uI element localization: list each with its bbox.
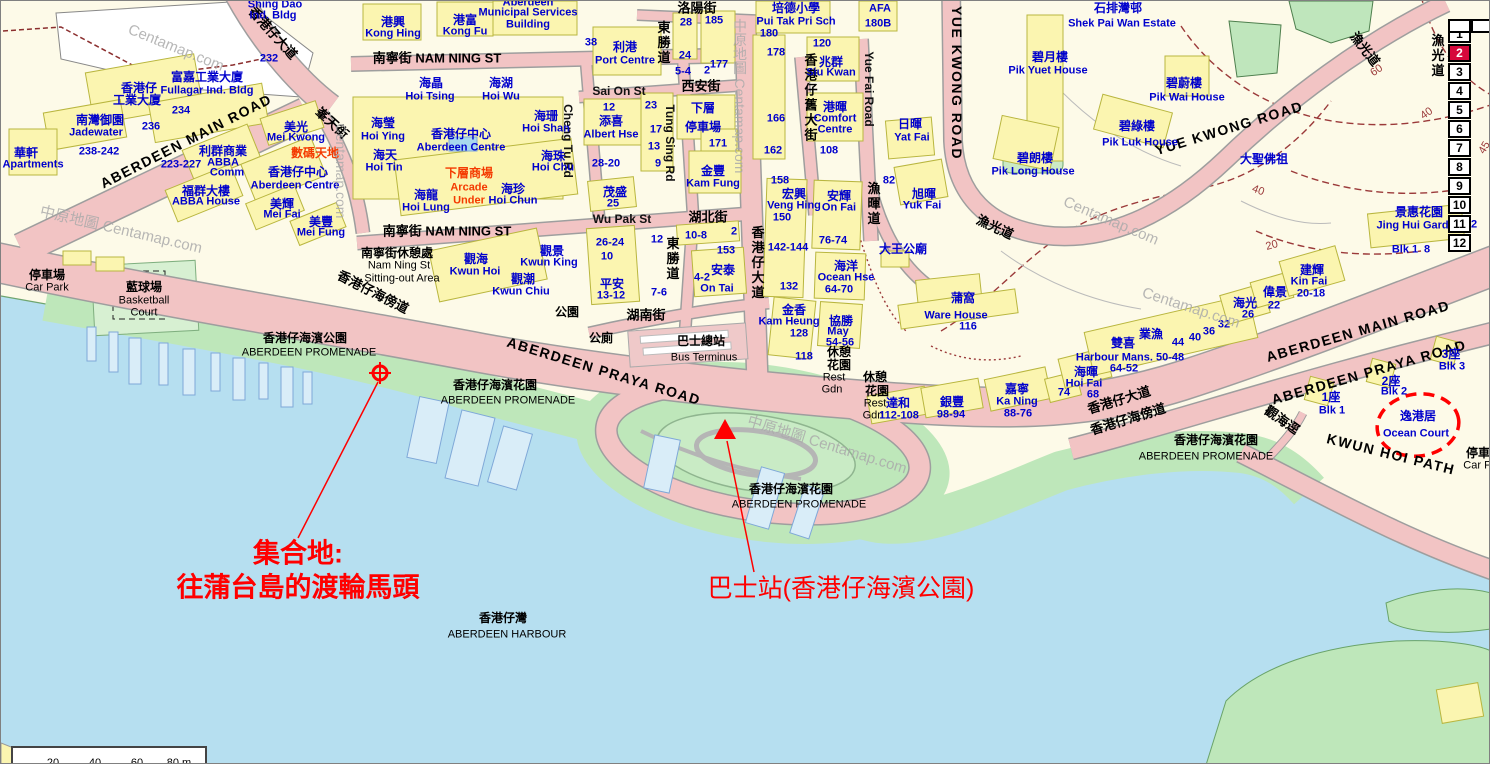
map-label: 港興 (381, 16, 405, 28)
map-label: Fullagar Ind. Bldg (161, 86, 254, 97)
map-label: 海龍 (414, 189, 438, 201)
map-label: Jadewater (69, 128, 123, 139)
map-label: 銀豐 (940, 396, 964, 408)
map-label: 香港仔中心 (268, 166, 328, 178)
map-label: Arcade (450, 183, 487, 194)
map-label: 宏興 (782, 188, 806, 200)
map-label: 166 (767, 114, 785, 125)
map-label: Apartments (2, 160, 63, 171)
map-label: 利群商業 (199, 145, 247, 157)
map-label: Kwun Hoi (450, 267, 501, 278)
map-label: Car Park (1463, 461, 1490, 472)
map-label: 3座 (1442, 348, 1461, 360)
map-label: 逸港居 (1400, 410, 1436, 422)
map-label: 142-144 (768, 243, 808, 254)
scale-tick: 40 (89, 757, 101, 764)
map-label: 南灣御園 (76, 114, 124, 126)
map-label: 44 (1172, 338, 1184, 349)
map-label: 業漁 (1139, 328, 1163, 340)
map-label: 港暉 (823, 101, 847, 113)
map-label: 休憩 (827, 346, 851, 358)
map-label: 富嘉工業大廈 (171, 71, 243, 83)
map-label: 海珍 (501, 183, 525, 195)
map-label: 40 (1250, 184, 1265, 199)
map-label: 海晶 (419, 77, 443, 89)
map-label: Ind. Bldg (249, 11, 296, 22)
map-label: Mei Kwong (267, 133, 325, 144)
map-label: 旭暉 (912, 188, 936, 200)
map-label: Aberdeen Centre (251, 181, 340, 192)
map-label: 湖南街 (626, 309, 665, 322)
map-label: 26 (1242, 310, 1254, 321)
map-label: 公廁 (589, 332, 613, 344)
map-label: 下層商場 (445, 167, 493, 179)
scale-tick: 80 m (167, 757, 191, 764)
map-label: 茂盛 (603, 186, 627, 198)
map-label: 香港仔海濱花園 (453, 379, 537, 391)
map-label: Mei Fai (263, 210, 300, 221)
page-index-button-8[interactable]: 8 (1448, 158, 1471, 176)
map-label: Pik Long House (991, 167, 1074, 178)
map-label: 234 (172, 106, 190, 117)
map-label: Ocean Court (1383, 429, 1449, 440)
map-label: Ka Ning (996, 397, 1038, 408)
page-index-button-12[interactable]: 12 (1448, 234, 1471, 252)
map-label: 40 (1189, 333, 1201, 344)
map-label: 1座 (1322, 391, 1341, 403)
map-label: 石排灣邨 (1094, 2, 1142, 14)
map-label: Sitting-out Area (364, 274, 439, 285)
map-label: Ware House (924, 311, 987, 322)
page-index-button-5[interactable]: 5 (1448, 101, 1471, 119)
map-label: Kam Heung (758, 317, 819, 328)
map-label: 公園 (555, 306, 579, 318)
map-label: Blk 1 (1392, 245, 1418, 256)
map-label: 45 (1477, 140, 1490, 156)
scale-tick: 60 (131, 757, 143, 764)
map-label: 利港 (613, 41, 637, 53)
map-label: Under (453, 196, 485, 207)
map-label: 添喜 (599, 115, 623, 127)
map-label: Albert Hse (583, 130, 638, 141)
scale-tick: 20 (47, 757, 59, 764)
map-label: 24 (679, 51, 691, 62)
map-label: 香港仔灣 (479, 612, 527, 624)
map-label: 南寧街 NAM NING ST (383, 225, 512, 238)
map-label: 22 (1268, 301, 1280, 312)
map-label: 碧月樓 (1032, 51, 1068, 63)
map-label: 偉景 (1263, 286, 1287, 298)
map-label: 223-227 (161, 160, 201, 171)
map-label: Hoi Chu (532, 163, 574, 174)
page-index-button-7[interactable]: 7 (1448, 139, 1471, 157)
map-label: 238-242 (79, 147, 119, 158)
map-label: 162 (764, 146, 782, 157)
map-label: 中原地圖 Centamap.com (745, 414, 908, 477)
map-label: 171 (709, 139, 727, 150)
map-label: YUE KWONG ROAD (950, 6, 964, 160)
map-label: Sai On St (592, 85, 645, 97)
page-index-button-10[interactable]: 10 (1448, 196, 1471, 214)
map-label: Ocean Hse (818, 273, 875, 284)
map-label: 海暉 (1074, 366, 1098, 378)
map-label: 下層 (691, 102, 715, 114)
meeting-point-label: 集合地: 往蒲台島的渡輪馬頭 (177, 537, 420, 605)
map-label: Blk 3 (1439, 362, 1465, 373)
map-label: 漁暉道 (867, 182, 880, 227)
map-label: 2 (731, 227, 737, 238)
map-label: 漁光道 (1431, 34, 1444, 79)
page-index-partial-box (1471, 19, 1490, 33)
map-label: 停車場 (685, 121, 721, 133)
map-label: 香港仔中心 (431, 128, 491, 140)
map-label: Kam Fung (686, 179, 740, 190)
map-label: 海湖 (489, 77, 513, 89)
map-label: 金豐 (701, 165, 725, 177)
page-index: 123456789101112 (1448, 25, 1471, 253)
page-index-partial-box (1448, 19, 1471, 33)
map-label: 10-8 (685, 231, 707, 242)
map-label: 日暉 (898, 118, 922, 130)
map-label: ABBA House (172, 197, 240, 208)
map-label: 116 (959, 322, 977, 333)
map-label: Nam Ning St (368, 261, 430, 272)
meeting-point-label-line1: 集合地: (177, 537, 420, 571)
map-label: Hoi Shan (522, 124, 570, 135)
map-label: Rest (864, 399, 887, 410)
map-label: Pik Wai House (1149, 93, 1224, 104)
map-label: 觀海 (464, 253, 488, 265)
map-label: 香港仔海濱花園 (749, 483, 833, 495)
map-label: Wu Pak St (593, 213, 651, 225)
map-label: 232 (260, 54, 278, 65)
map-label: 38 (585, 38, 597, 49)
map-label: 巴士總站 (677, 335, 725, 347)
map-label: Comm (210, 168, 244, 179)
map-label: 88-76 (1004, 409, 1032, 420)
map-label: 培德小學 (772, 2, 820, 14)
map-label: 36 (1203, 327, 1215, 338)
map-label: Rest (823, 373, 846, 384)
map-label: 178 (767, 48, 785, 59)
map-label: 景惠花園 (1395, 206, 1443, 218)
map-label: 82 (883, 176, 895, 187)
map-label: Hoi Chun (489, 196, 538, 207)
map-label: 10 (601, 252, 613, 263)
map-label: 花園 (827, 359, 851, 371)
map-label: 153 (717, 246, 735, 257)
map-label: 112-108 (879, 411, 919, 422)
scale-bar: 20406080 m (11, 746, 207, 764)
map-label: 中原地圖 Centamap.com (733, 19, 747, 174)
map-label: 蒲窩 (951, 292, 975, 304)
map-label: 港富 (453, 14, 477, 26)
map-label: 68 (1087, 390, 1099, 401)
map-label: 128 (790, 329, 808, 340)
map-label: 安輝 (827, 190, 851, 202)
map-label: Tung Sing Rd (664, 104, 676, 181)
map-label: Hoi Ying (361, 132, 405, 143)
map-label: Court (131, 308, 158, 319)
map-label: 湖北街 (688, 211, 727, 224)
map-label: 13 (648, 142, 660, 153)
map-label: 20-18 (1297, 289, 1325, 300)
map-label: Centamap.com (1140, 285, 1241, 331)
map-label: Blk 2 (1381, 387, 1407, 398)
map-label: 28 (680, 18, 692, 29)
map-label: Building (506, 20, 550, 31)
map-label: Kong Fu (443, 27, 488, 38)
map-label: AFA (869, 4, 891, 15)
map-label: 觀潮 (511, 273, 535, 285)
map-label: Gdn (822, 385, 843, 396)
map-label: Kwun Chiu (492, 287, 549, 298)
map-label: On Tai (700, 284, 733, 295)
map-label: 海洋 (834, 260, 858, 272)
map-label: 118 (795, 352, 813, 363)
map-label: ABERDEEN HARBOUR (448, 630, 567, 641)
map-label: 64-70 (825, 285, 853, 296)
map-label: 華軒 (14, 147, 38, 159)
map-label: 漁光道 (975, 213, 1016, 241)
map-label: ABERDEEN PROMENADE (1139, 452, 1273, 463)
map-label: 安泰 (711, 264, 735, 276)
map-label: Pik Yuet House (1008, 66, 1087, 77)
map-label: Yat Fai (894, 133, 929, 144)
map-label: 大聖佛祖 (1240, 153, 1288, 165)
map-label: 中原地圖 Centamap.com (38, 204, 203, 256)
map-label: 觀海逕 (1262, 403, 1301, 436)
map-label: 25 (607, 199, 619, 210)
map-label: 觀景 (540, 245, 564, 257)
map-label: 98-94 (937, 410, 965, 421)
map-label: 香港仔海濱花園 (1174, 434, 1258, 446)
meeting-point-label-line2: 往蒲台島的渡輪馬頭 (177, 571, 420, 605)
map-label: 海珊 (534, 110, 558, 122)
map-label: 5-4 (675, 67, 691, 78)
map-label: 12 (651, 235, 663, 246)
map-label: 26-24 (596, 238, 624, 249)
map-label: 工業大廈 (113, 94, 161, 106)
map-label: 17 (650, 125, 662, 136)
map-label: 數碼天地 (291, 147, 339, 159)
map-label: 東勝道 (657, 21, 670, 66)
map-label: 23 (645, 101, 657, 112)
map-label: 大王公廟 (879, 243, 927, 255)
map-label: 13-12 (597, 291, 625, 302)
page-index-button-2[interactable]: 2 (1448, 44, 1471, 62)
map-label: Siu Kwan (806, 68, 856, 79)
map-label: Hoi Wu (482, 92, 520, 103)
map-label: Blk 1 (1319, 406, 1345, 417)
map-label: 碧綠樓 (1119, 120, 1155, 132)
map-label: Car Park (25, 283, 68, 294)
map-label: Port Centre (595, 56, 655, 67)
map-label: Bus Terminus (671, 353, 737, 364)
bus-stop-label: 巴士站(香港仔海濱公園) (708, 573, 975, 604)
map-label: Centamap.com (126, 22, 226, 74)
map-label: 76-74 (819, 236, 847, 247)
map-label: 南寧街休憩處 (361, 247, 433, 259)
map-label: 海珠 (541, 150, 565, 162)
map-label: 158 (771, 176, 789, 187)
map-label: 藍球場 (126, 281, 162, 293)
map-label: Shek Pai Wan Estate (1068, 19, 1176, 30)
map-labels-layer: ABERDEEN MAIN ROAD南寧街 NAM NING ST南寧街 NAM… (1, 1, 1489, 763)
map-label: 建輝 (1300, 264, 1324, 276)
map-label: Basketball (119, 296, 170, 307)
map-label: 海瑩 (371, 117, 395, 129)
map-label: Hoi Tsing (405, 92, 454, 103)
map-label: Municipal Services (478, 8, 577, 19)
page-index-button-11[interactable]: 11 (1448, 215, 1471, 233)
map-label: 達和 (886, 397, 910, 409)
map-label: Yuk Fai (903, 201, 942, 212)
page-index-button-6[interactable]: 6 (1448, 120, 1471, 138)
map-label: 185 (705, 16, 723, 27)
map-label: Pik Luk House (1102, 138, 1178, 149)
map-label: 停車場 (1466, 447, 1490, 459)
map-label: 嘉寧 (1005, 383, 1029, 395)
map-label: ABERDEEN PROMENADE (242, 348, 376, 359)
map-label: 150 (773, 213, 791, 224)
map-label: 西安街 (681, 80, 720, 93)
map-label: 8 (1424, 245, 1430, 256)
map-label: 東勝道 (666, 237, 679, 282)
page-index-button-3[interactable]: 3 (1448, 63, 1471, 81)
map-label: 平安 (600, 278, 624, 290)
map-label: Hoi Lung (402, 203, 450, 214)
map-label: 碧朗樓 (1017, 152, 1053, 164)
map-label: 64-52 (1110, 364, 1138, 375)
map-label: Mei Fung (297, 228, 345, 239)
map-label: 雙喜 (1111, 337, 1135, 349)
map-label: 108 (820, 146, 838, 157)
map-label: Yue Fai Road (863, 51, 875, 126)
map-label: 香港仔海濱公園 (263, 332, 347, 344)
map-label: Veng Hing (767, 201, 821, 212)
map-label: Pui Tak Pri Sch (756, 17, 835, 28)
map-label: On Fai (822, 203, 856, 214)
map-label: 7-6 (651, 288, 667, 299)
map-label: 洛陽街 (677, 2, 716, 15)
map-label: Centamap.com (1061, 194, 1160, 248)
map-label: ABERDEEN PROMENADE (732, 500, 866, 511)
map-label: 休憩 (863, 371, 887, 383)
map-label: 177 (710, 60, 728, 71)
map-label: 28-20 (592, 159, 620, 170)
map-label: ABERDEEN PROMENADE (441, 396, 575, 407)
map-label: 120 (813, 39, 831, 50)
map-label: 海天 (373, 149, 397, 161)
map-label: Kwun King (520, 258, 577, 269)
map-label: Aberdeen Centre (417, 143, 506, 154)
page-index-button-4[interactable]: 4 (1448, 82, 1471, 100)
map-label: Kong Hing (365, 29, 421, 40)
map-label: 40 (1419, 106, 1435, 122)
map-label: 180 (760, 29, 778, 40)
map-label: Hoi Tin (365, 163, 402, 174)
map-label: 132 (780, 282, 798, 293)
map-canvas[interactable]: ABERDEEN MAIN ROAD南寧街 NAM NING ST南寧街 NAM… (0, 0, 1490, 764)
map-label: 20 (1265, 239, 1280, 253)
map-label: 180B (865, 19, 891, 30)
map-label: 12 (603, 103, 615, 114)
map-label: 香港仔大道 (751, 226, 764, 301)
map-label: 9 (655, 159, 661, 170)
map-label: 金香 (782, 304, 806, 316)
map-label: 海光 (1233, 297, 1257, 309)
page-index-button-9[interactable]: 9 (1448, 177, 1471, 195)
map-label: 南寧街 NAM NING ST (373, 52, 502, 65)
map-label: 236 (142, 122, 160, 133)
map-label: 停車場 (29, 269, 65, 281)
map-label: Centamap.com (334, 124, 348, 219)
map-label: 碧蔚樓 (1166, 77, 1202, 89)
map-label: Centre (818, 125, 853, 136)
map-label: Kin Fai (1291, 277, 1328, 288)
